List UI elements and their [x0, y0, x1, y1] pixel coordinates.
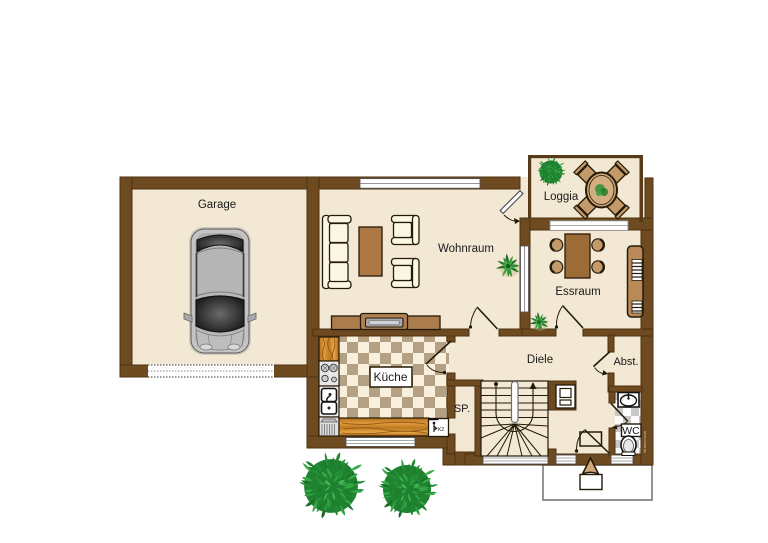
svg-text:K2: K2: [438, 427, 444, 433]
svg-text:Garage: Garage: [198, 199, 236, 211]
svg-text:Essraum: Essraum: [555, 286, 600, 298]
svg-text:Wohnraum: Wohnraum: [438, 243, 494, 255]
svg-text:WC: WC: [622, 425, 640, 437]
svg-text:SP.: SP.: [454, 403, 470, 415]
svg-text:Mustermann: Mustermann: [642, 431, 647, 453]
svg-text:Abst.: Abst.: [613, 356, 638, 368]
svg-text:Loggia: Loggia: [544, 191, 579, 203]
svg-text:Diele: Diele: [527, 354, 553, 366]
svg-text:Küche: Küche: [373, 370, 407, 384]
